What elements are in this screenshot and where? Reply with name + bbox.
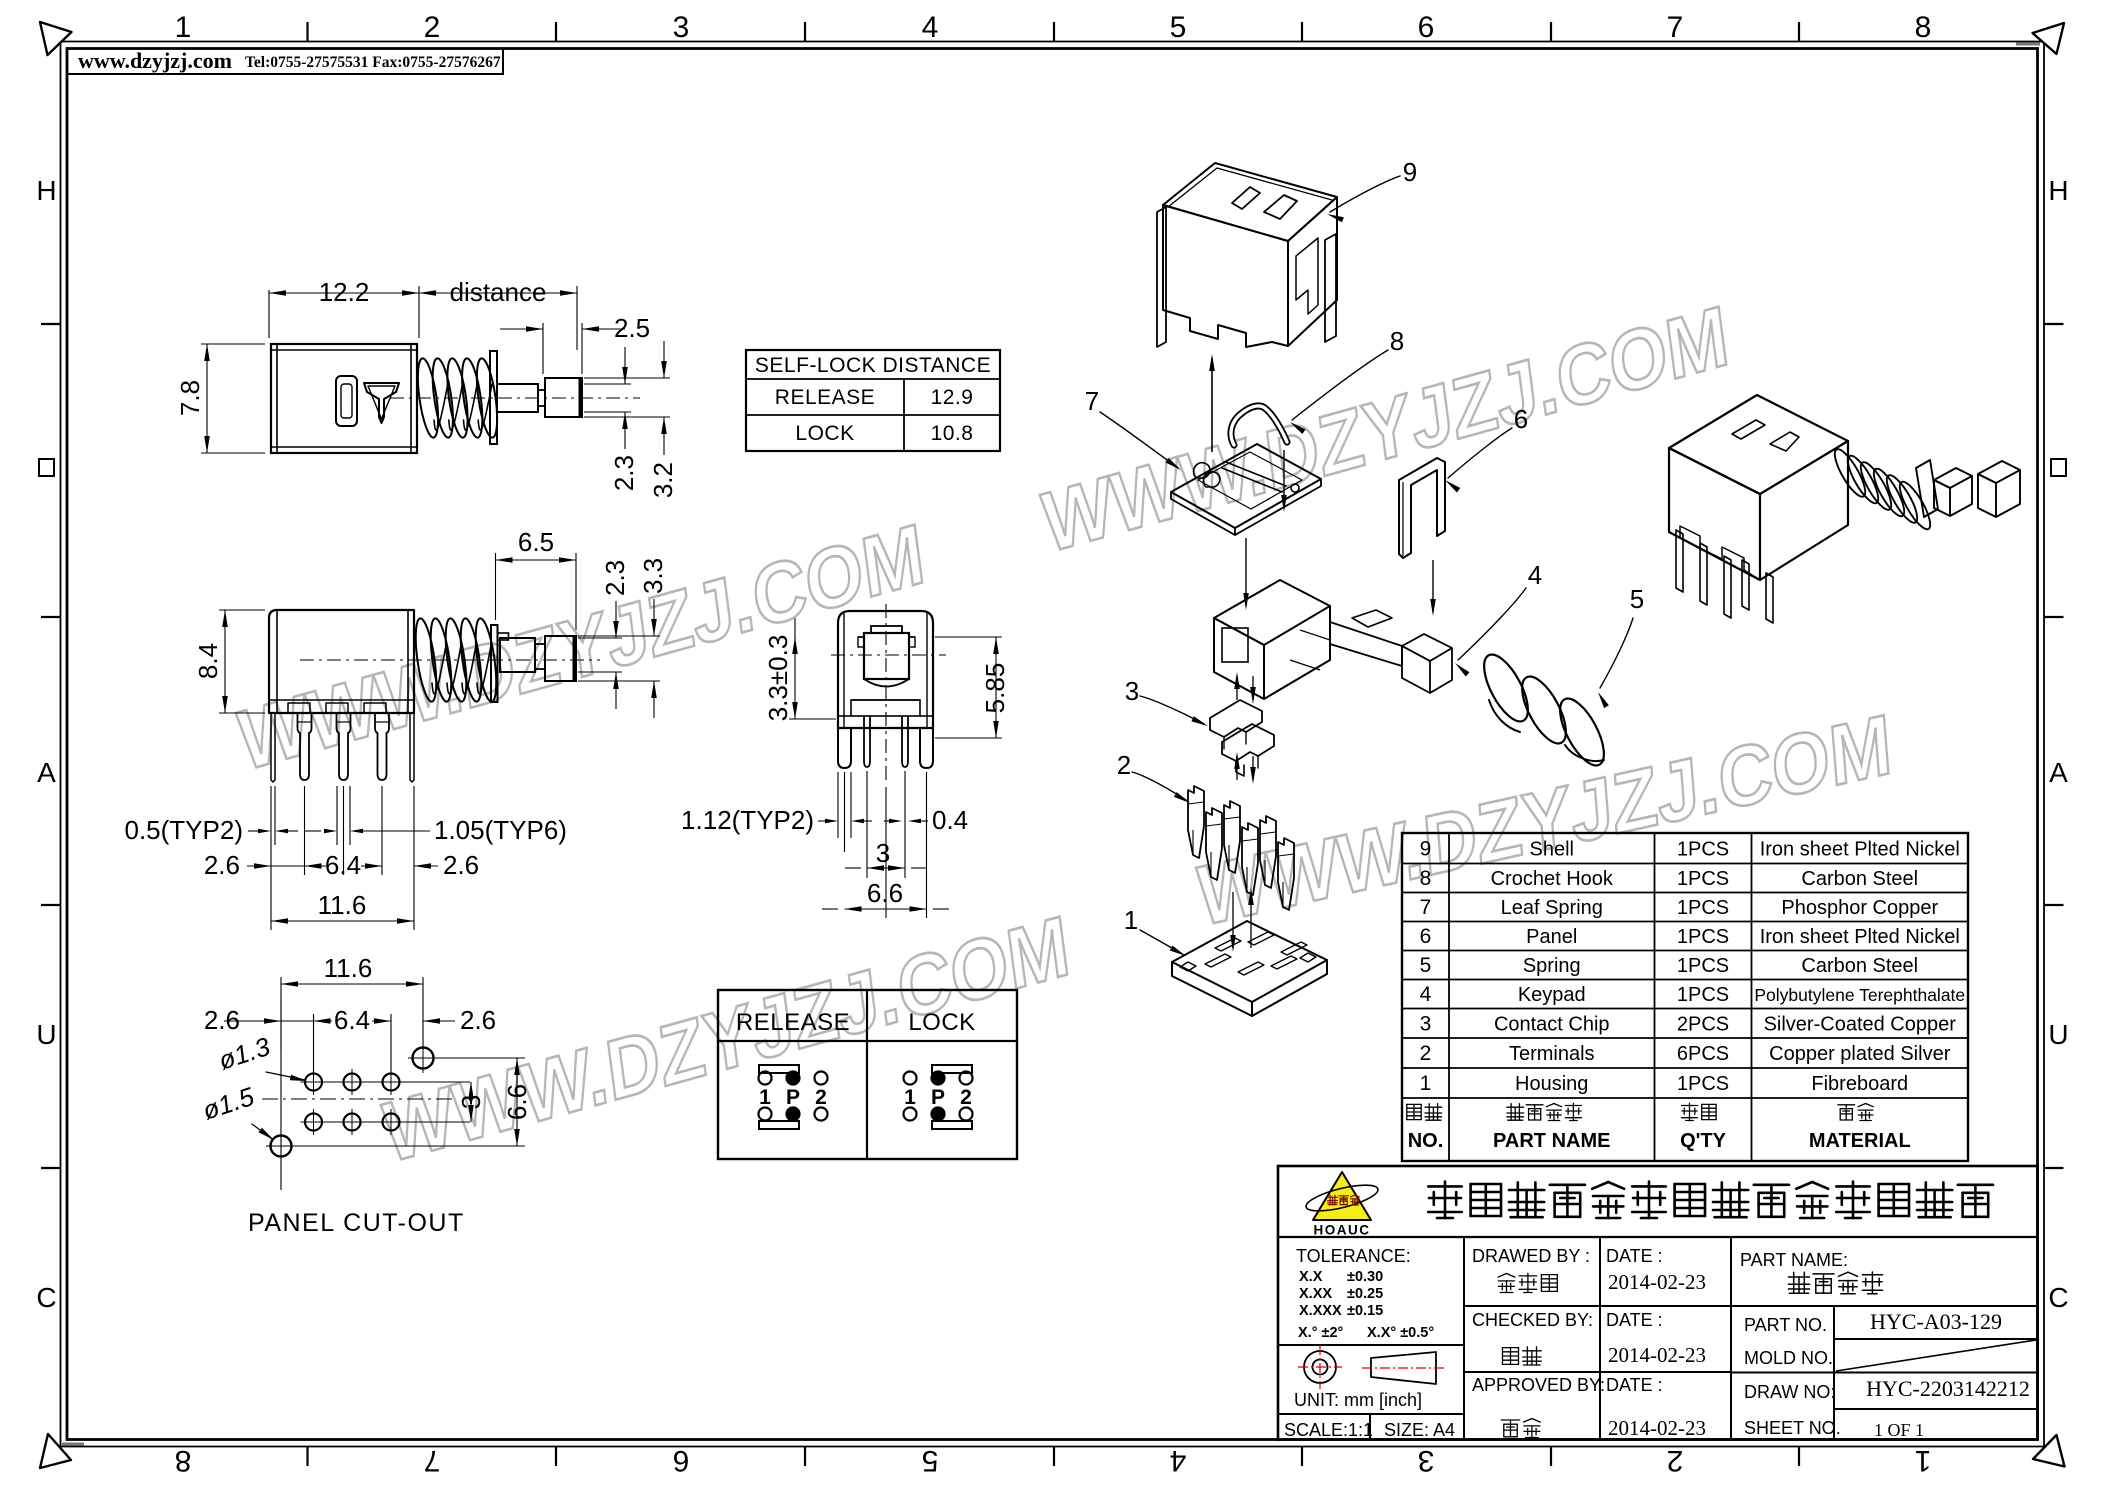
- svg-text:Terminals: Terminals: [1509, 1043, 1595, 1065]
- svg-text:Contact Chip: Contact Chip: [1494, 1013, 1610, 1035]
- svg-text:Iron sheet Plted Nickel: Iron sheet Plted Nickel: [1760, 838, 1960, 860]
- svg-text:LOCK: LOCK: [908, 1009, 975, 1036]
- svg-text:A: A: [2049, 757, 2068, 788]
- svg-text:8: 8: [1915, 11, 1932, 44]
- svg-text:3: 3: [673, 11, 690, 44]
- svg-text:DRAWED BY :: DRAWED BY :: [1472, 1246, 1590, 1266]
- svg-text:www.dzyjzj.com: www.dzyjzj.com: [78, 48, 232, 73]
- svg-text:±0.25: ±0.25: [1347, 1286, 1383, 1302]
- svg-text:7.8: 7.8: [175, 380, 205, 416]
- svg-text:U: U: [2048, 1019, 2068, 1050]
- svg-text:6: 6: [1420, 925, 1432, 948]
- svg-text:8: 8: [1390, 326, 1404, 356]
- svg-text:U: U: [36, 1019, 56, 1050]
- svg-text:HYC-2203142212: HYC-2203142212: [1866, 1376, 2030, 1401]
- svg-text:Spring: Spring: [1523, 955, 1581, 977]
- svg-text:5: 5: [1630, 584, 1644, 614]
- svg-text:C: C: [2048, 1282, 2068, 1313]
- svg-text:4: 4: [922, 11, 939, 44]
- svg-text:HOAUC: HOAUC: [1314, 1223, 1371, 1238]
- svg-text:2.5: 2.5: [614, 313, 650, 343]
- svg-text:SHEET NO.: SHEET NO.: [1744, 1418, 1841, 1438]
- svg-text:X.XX: X.XX: [1299, 1286, 1332, 1302]
- svg-text:HYC-A03-129: HYC-A03-129: [1870, 1309, 2002, 1334]
- svg-text:1 OF 1: 1 OF 1: [1874, 1420, 1924, 1440]
- svg-text:4: 4: [1170, 1444, 1187, 1477]
- svg-text:2PCS: 2PCS: [1677, 1013, 1729, 1035]
- svg-text:Carbon Steel: Carbon Steel: [1801, 955, 1918, 977]
- svg-text:DRAW NO:: DRAW NO:: [1744, 1382, 1835, 1402]
- svg-text:2014-02-23: 2014-02-23: [1608, 1343, 1706, 1367]
- svg-text:3.3: 3.3: [638, 558, 668, 594]
- svg-text:C: C: [36, 1282, 56, 1313]
- svg-text:2: 2: [424, 11, 441, 44]
- svg-text:1: 1: [1124, 905, 1138, 935]
- svg-text:MOLD NO.: MOLD NO.: [1744, 1348, 1833, 1368]
- svg-text:Housing: Housing: [1515, 1073, 1588, 1095]
- svg-text:SELF-LOCK DISTANCE: SELF-LOCK DISTANCE: [755, 354, 991, 377]
- svg-text:1PCS: 1PCS: [1677, 868, 1729, 890]
- svg-text:H: H: [2048, 175, 2068, 206]
- svg-text:1: 1: [175, 11, 192, 44]
- svg-text:2.6: 2.6: [460, 1005, 496, 1035]
- svg-text:Silver-Coated Copper: Silver-Coated Copper: [1764, 1013, 1957, 1035]
- svg-text:7: 7: [1667, 11, 1684, 44]
- svg-text:2: 2: [1117, 750, 1131, 780]
- svg-text:1: 1: [904, 1086, 916, 1109]
- svg-text:A: A: [37, 757, 56, 788]
- svg-text:9: 9: [1403, 157, 1417, 187]
- svg-text:1PCS: 1PCS: [1677, 955, 1729, 977]
- svg-text:RELEASE: RELEASE: [775, 386, 875, 409]
- svg-text:PART NO.: PART NO.: [1744, 1315, 1827, 1335]
- svg-text:7: 7: [1420, 896, 1432, 919]
- svg-text:Q'TY: Q'TY: [1680, 1130, 1727, 1152]
- svg-text:0.4: 0.4: [932, 805, 968, 835]
- svg-text:5.85: 5.85: [980, 663, 1010, 714]
- svg-text:6.6: 6.6: [867, 878, 903, 908]
- svg-text:Copper plated Silver: Copper plated Silver: [1769, 1043, 1951, 1065]
- svg-text:11.6: 11.6: [324, 953, 373, 983]
- svg-text:SIZE: A4: SIZE: A4: [1384, 1420, 1455, 1440]
- svg-text:Fibreboard: Fibreboard: [1811, 1073, 1908, 1095]
- svg-text:3: 3: [1125, 676, 1139, 706]
- svg-text:X.° ±2°: X.° ±2°: [1298, 1325, 1344, 1341]
- svg-text:Polybutylene Terephthalate: Polybutylene Terephthalate: [1754, 985, 1965, 1005]
- svg-text:1PCS: 1PCS: [1677, 897, 1729, 919]
- svg-text:5: 5: [1420, 954, 1432, 977]
- svg-text:PART NAME:: PART NAME:: [1740, 1250, 1848, 1270]
- svg-text:Carbon Steel: Carbon Steel: [1801, 868, 1918, 890]
- svg-text:6.4: 6.4: [325, 850, 361, 880]
- svg-text:1.12(TYP2): 1.12(TYP2): [681, 805, 814, 835]
- svg-text:6: 6: [1418, 11, 1435, 44]
- svg-text:2: 2: [815, 1086, 827, 1109]
- svg-text:6: 6: [673, 1444, 690, 1477]
- svg-text:APPROVED BY:: APPROVED BY:: [1472, 1375, 1605, 1395]
- svg-text:3: 3: [1420, 1012, 1432, 1035]
- svg-text:MATERIAL: MATERIAL: [1809, 1130, 1911, 1152]
- svg-text:X.X° ±0.5°: X.X° ±0.5°: [1367, 1325, 1434, 1341]
- svg-text:12.2: 12.2: [319, 277, 370, 307]
- svg-text:DATE :: DATE :: [1606, 1310, 1663, 1330]
- svg-text:7: 7: [424, 1444, 441, 1477]
- svg-text:1.05(TYP6): 1.05(TYP6): [434, 815, 567, 845]
- svg-text:1PCS: 1PCS: [1677, 1073, 1729, 1095]
- svg-text:Phosphor Copper: Phosphor Copper: [1781, 897, 1938, 919]
- svg-text:6PCS: 6PCS: [1677, 1043, 1729, 1065]
- svg-text:0.5(TYP2): 0.5(TYP2): [125, 815, 244, 845]
- svg-text:8.4: 8.4: [193, 643, 223, 679]
- svg-text:5: 5: [922, 1444, 939, 1477]
- svg-text:1: 1: [759, 1086, 771, 1109]
- svg-text:2014-02-23: 2014-02-23: [1608, 1270, 1706, 1294]
- svg-text:12.9: 12.9: [931, 386, 974, 409]
- svg-text:1: 1: [1420, 1072, 1432, 1095]
- svg-text:3.3±0.3: 3.3±0.3: [763, 635, 793, 722]
- svg-text:2: 2: [1420, 1042, 1432, 1065]
- svg-text:CHECKED BY:: CHECKED BY:: [1472, 1310, 1593, 1330]
- svg-text:X.XXX: X.XXX: [1299, 1303, 1342, 1319]
- svg-text:6: 6: [1514, 404, 1528, 434]
- svg-text:2: 2: [1667, 1444, 1684, 1477]
- svg-text:5: 5: [1170, 11, 1187, 44]
- svg-text:X.X: X.X: [1299, 1269, 1323, 1285]
- svg-text:1PCS: 1PCS: [1677, 926, 1729, 948]
- svg-text:Iron sheet Plted Nickel: Iron sheet Plted Nickel: [1760, 926, 1960, 948]
- svg-text:H: H: [36, 175, 56, 206]
- svg-text:1: 1: [1915, 1444, 1932, 1477]
- svg-text:2.3: 2.3: [609, 455, 639, 491]
- svg-text:8: 8: [1420, 867, 1432, 890]
- svg-text:1PCS: 1PCS: [1677, 838, 1729, 860]
- svg-text:SCALE:1:1: SCALE:1:1: [1284, 1420, 1373, 1440]
- svg-text:P: P: [931, 1086, 945, 1109]
- svg-text:Tel:0755-27575531 Fax:0755-27: Tel:0755-27575531 Fax:0755-27576267: [245, 54, 501, 71]
- svg-text:UNIT: mm [inch]: UNIT: mm [inch]: [1294, 1390, 1422, 1410]
- svg-text:PANEL CUT-OUT: PANEL CUT-OUT: [248, 1209, 465, 1237]
- svg-text:P: P: [786, 1086, 800, 1109]
- svg-text:6.6: 6.6: [502, 1084, 532, 1120]
- svg-text:6.5: 6.5: [518, 527, 554, 557]
- svg-text:10.8: 10.8: [931, 422, 974, 445]
- svg-text:2.6: 2.6: [204, 1005, 240, 1035]
- svg-text:Panel: Panel: [1526, 926, 1577, 948]
- svg-text:DATE :: DATE :: [1606, 1246, 1663, 1266]
- svg-text:3: 3: [1418, 1444, 1435, 1477]
- svg-text:9: 9: [1420, 837, 1432, 860]
- svg-text:3: 3: [876, 838, 890, 868]
- svg-text:4: 4: [1420, 983, 1432, 1006]
- svg-text:2.6: 2.6: [204, 850, 240, 880]
- svg-text:TOLERANCE:: TOLERANCE:: [1296, 1246, 1411, 1266]
- svg-text:4: 4: [1528, 560, 1542, 590]
- svg-text:Crochet Hook: Crochet Hook: [1491, 868, 1614, 890]
- svg-text:8: 8: [175, 1444, 192, 1477]
- svg-text:±0.15: ±0.15: [1347, 1303, 1383, 1319]
- svg-text:NO.: NO.: [1408, 1130, 1444, 1152]
- svg-text:2: 2: [960, 1086, 972, 1109]
- svg-text:Leaf Spring: Leaf Spring: [1501, 897, 1603, 919]
- svg-text:11.6: 11.6: [318, 890, 367, 920]
- svg-text:2.6: 2.6: [443, 850, 479, 880]
- svg-text:6.4: 6.4: [334, 1005, 370, 1035]
- svg-text:1PCS: 1PCS: [1677, 984, 1729, 1006]
- svg-text:±0.30: ±0.30: [1347, 1269, 1383, 1285]
- svg-text:3.2: 3.2: [648, 462, 678, 498]
- svg-text:3: 3: [456, 1095, 486, 1109]
- svg-text:LOCK: LOCK: [795, 422, 854, 445]
- svg-text:Keypad: Keypad: [1518, 984, 1586, 1006]
- svg-text:DATE :: DATE :: [1606, 1375, 1663, 1395]
- svg-text:2.3: 2.3: [600, 560, 630, 596]
- svg-text:2014-02-23: 2014-02-23: [1608, 1416, 1706, 1440]
- svg-text:RELEASE: RELEASE: [736, 1009, 850, 1036]
- svg-text:7: 7: [1085, 386, 1099, 416]
- svg-text:PART NAME: PART NAME: [1493, 1130, 1610, 1152]
- svg-text:Shell: Shell: [1530, 838, 1574, 860]
- svg-text:distance: distance: [450, 277, 547, 307]
